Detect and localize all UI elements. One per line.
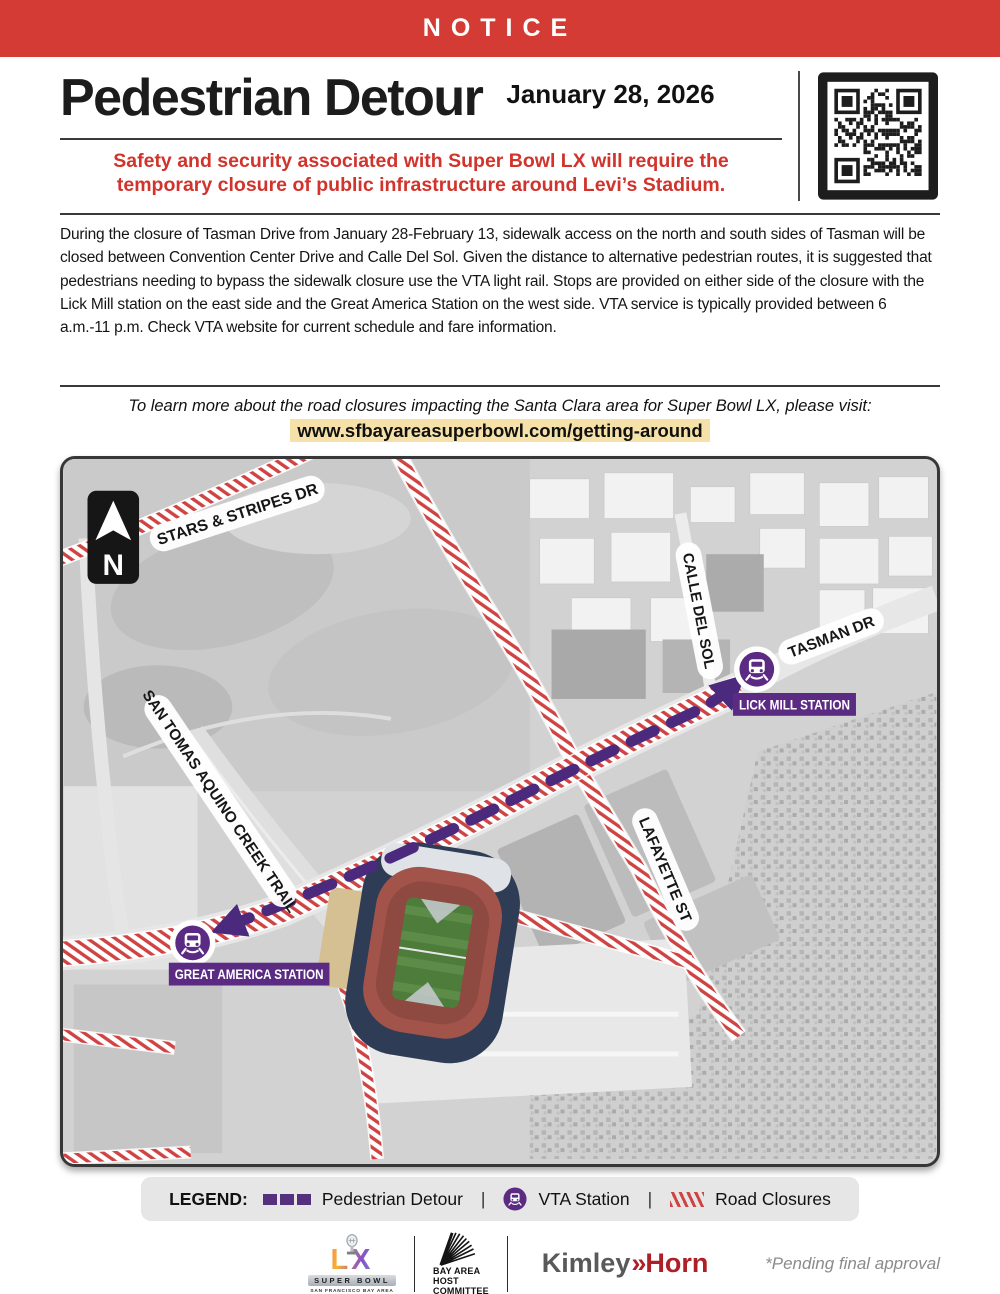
svg-text:N: N — [103, 549, 124, 582]
content: Pedestrian Detour January 28, 2026 Safet… — [0, 71, 1000, 1294]
super-bowl-subtitle: SAN FRANCISCO BAY AREA — [308, 1289, 396, 1294]
learn-more-text: To learn more about the road closures im… — [60, 397, 940, 416]
legend-vta-station-label: VTA Station — [538, 1189, 629, 1210]
header: Pedestrian Detour January 28, 2026 Safet… — [60, 71, 940, 201]
date: January 28, 2026 — [506, 79, 714, 110]
host-committee-fan-icon — [433, 1231, 477, 1267]
legend-road-closures-label: Road Closures — [715, 1189, 831, 1210]
notice-flyer: NOTICE Pedestrian Detour January 28, 202… — [0, 0, 1000, 1294]
super-bowl-name: SUPER BOWL — [308, 1275, 396, 1286]
host-committee-text: BAY AREA HOST COMMITTEE — [433, 1267, 489, 1294]
divider — [60, 138, 782, 140]
pedestrian-detour-icon — [263, 1194, 311, 1205]
footer: LX SUPER BOWL SAN FRANCISCO BAY AREA BAY… — [60, 1231, 940, 1294]
divider — [507, 1236, 508, 1292]
kimley-horn-logo: Kimley»Horn — [542, 1248, 709, 1279]
road-closures-icon — [670, 1192, 704, 1207]
divider — [414, 1236, 415, 1292]
detour-map: STARS & STRIPES DR CALLE DEL SOL TASMAN … — [60, 456, 940, 1167]
title-row: Pedestrian Detour January 28, 2026 — [60, 71, 782, 126]
subtitle: Safety and security associated with Supe… — [111, 149, 731, 198]
svg-text:LICK MILL STATION: LICK MILL STATION — [739, 697, 850, 713]
divider — [60, 213, 940, 215]
map-legend: LEGEND: Pedestrian Detour | VTA Station … — [141, 1177, 859, 1221]
north-arrow: N — [88, 491, 140, 584]
legend-divider: | — [648, 1189, 653, 1210]
host-committee-logo: BAY AREA HOST COMMITTEE — [433, 1231, 489, 1294]
qr-code — [818, 71, 938, 201]
legend-divider: | — [481, 1189, 486, 1210]
svg-text:GREAT AMERICA STATION: GREAT AMERICA STATION — [175, 966, 324, 982]
legend-pedestrian-detour-label: Pedestrian Detour — [322, 1189, 463, 1210]
header-left: Pedestrian Detour January 28, 2026 Safet… — [60, 71, 800, 201]
legend-title: LEGEND: — [169, 1189, 248, 1210]
page-title: Pedestrian Detour — [60, 71, 482, 126]
super-bowl-lx-letters: LX — [308, 1247, 396, 1275]
notice-banner-label: NOTICE — [423, 14, 577, 43]
qr-box — [816, 71, 940, 201]
map-svg: STARS & STRIPES DR CALLE DEL SOL TASMAN … — [63, 459, 937, 1164]
notice-banner: NOTICE — [0, 0, 1000, 57]
super-bowl-logo: LX SUPER BOWL SAN FRANCISCO BAY AREA — [308, 1234, 396, 1294]
getting-around-link[interactable]: www.sfbayareasuperbowl.com/getting-aroun… — [290, 419, 709, 442]
body-paragraph: During the closure of Tasman Drive from … — [60, 223, 940, 339]
url-line: www.sfbayareasuperbowl.com/getting-aroun… — [60, 420, 940, 442]
pending-approval-note: *Pending final approval — [765, 1254, 940, 1274]
divider — [60, 385, 940, 387]
vta-station-icon — [503, 1187, 527, 1211]
